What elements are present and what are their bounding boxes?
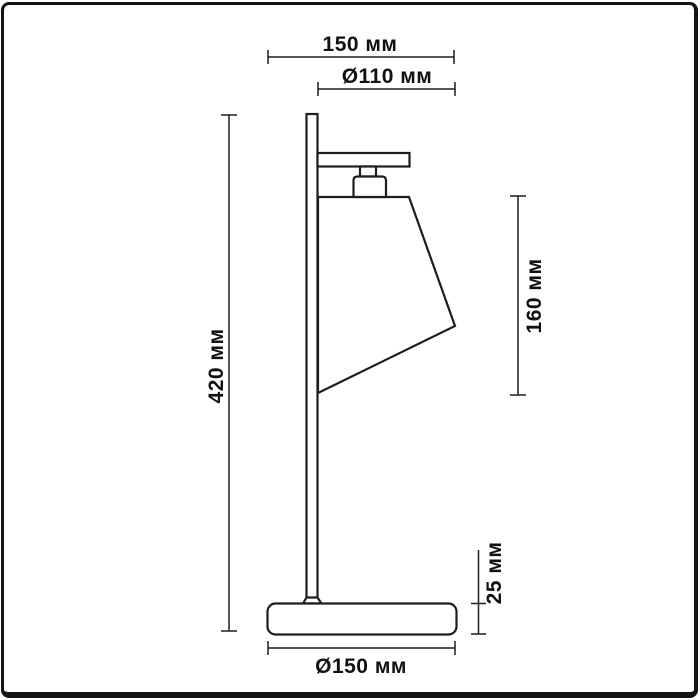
lamp-base xyxy=(268,604,457,635)
lamp-socket-neck xyxy=(360,167,376,177)
dimension-shade-diameter: Ø110 мм xyxy=(318,65,455,96)
dimension-shade-height: 160 мм xyxy=(510,196,546,395)
dim-shade-height-label: 160 мм xyxy=(523,259,546,334)
dim-base-height-label: 25 мм xyxy=(483,542,506,605)
dim-shade-diameter-label: Ø110 мм xyxy=(342,65,433,88)
dim-total-height-label: 420 мм xyxy=(205,329,228,404)
dimension-arm-length: 150 мм xyxy=(268,33,454,64)
dimension-base-height: 25 мм xyxy=(471,542,506,634)
lamp-socket xyxy=(354,177,387,198)
dim-arm-length-label: 150 мм xyxy=(323,33,398,56)
lamp-pole xyxy=(307,114,318,598)
lamp-drawing xyxy=(268,114,457,635)
lamp-shade xyxy=(318,197,455,393)
dimension-base-diameter: Ø150 мм xyxy=(268,641,455,678)
lamp-arm xyxy=(318,153,410,167)
technical-drawing-canvas: 150 мм Ø110 мм 420 мм 160 мм xyxy=(0,0,700,700)
lamp-dimension-diagram: 150 мм Ø110 мм 420 мм 160 мм xyxy=(0,0,700,700)
dimension-total-height: 420 мм xyxy=(205,115,237,631)
dim-base-diameter-label: Ø150 мм xyxy=(315,655,407,678)
